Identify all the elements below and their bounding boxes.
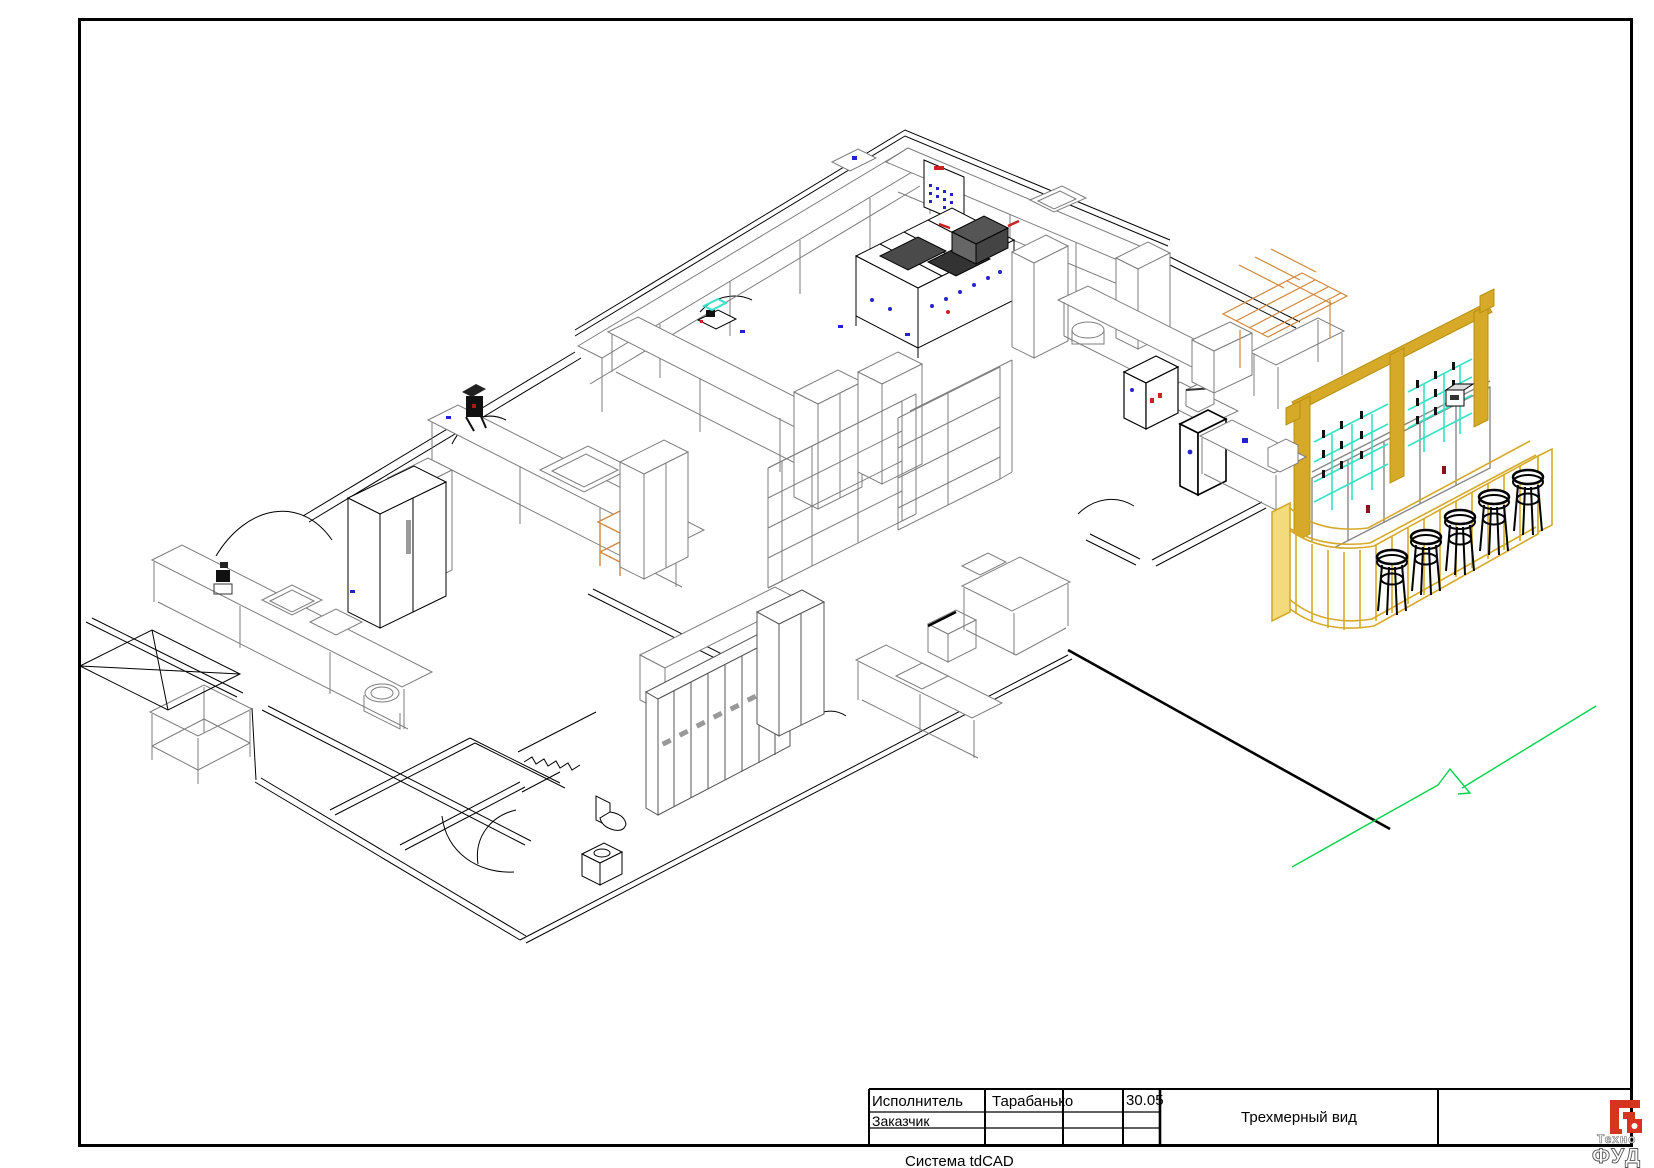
cabinet-latch-red bbox=[1366, 505, 1370, 513]
drawing-canvas: Исполнитель Тарабанько 30.05 Заказчик Тр… bbox=[0, 0, 1654, 1168]
panel-red-lamp bbox=[934, 166, 944, 170]
staff-tables bbox=[856, 610, 1002, 758]
small-appliance-top-left bbox=[832, 149, 876, 171]
logo-mark bbox=[1610, 1100, 1642, 1134]
stair-steps bbox=[524, 757, 580, 770]
double-door-fridge bbox=[348, 466, 446, 628]
slicer-machine bbox=[698, 299, 745, 333]
drawing-title: Трехмерный вид bbox=[1241, 1109, 1357, 1126]
section-break-line-green bbox=[1292, 706, 1596, 867]
logo-text-line2: ФУД bbox=[1592, 1145, 1642, 1168]
dish-table bbox=[962, 553, 1070, 655]
logo-text-line1: Техно bbox=[1597, 1132, 1637, 1146]
technofood-logo: Техно ФУД bbox=[1592, 1100, 1642, 1168]
bar-service-fridge bbox=[1180, 410, 1226, 495]
system-caption: Система tdCAD bbox=[905, 1153, 1014, 1168]
executor-label: Исполнитель bbox=[872, 1093, 963, 1110]
section-line-black bbox=[1068, 650, 1390, 829]
wc-fixtures bbox=[582, 796, 626, 885]
work-table-left bbox=[150, 685, 252, 784]
hot-cabinet bbox=[1124, 356, 1178, 429]
cad-sheet: Исполнитель Тарабанько 30.05 Заказчик Тр… bbox=[0, 0, 1654, 1168]
date-value: 30.05 bbox=[1126, 1092, 1164, 1109]
cabinet-behind-lockers bbox=[757, 590, 824, 736]
title-block-text: Исполнитель Тарабанько 30.05 Заказчик Тр… bbox=[872, 1092, 1357, 1168]
cabinet-latch-red-2 bbox=[1442, 466, 1446, 474]
slicer-guard-glass bbox=[704, 299, 726, 310]
customer-label: Заказчик bbox=[872, 1113, 930, 1129]
logo-mark-dot bbox=[1632, 1123, 1638, 1129]
executor-value: Тарабанько bbox=[992, 1093, 1073, 1110]
